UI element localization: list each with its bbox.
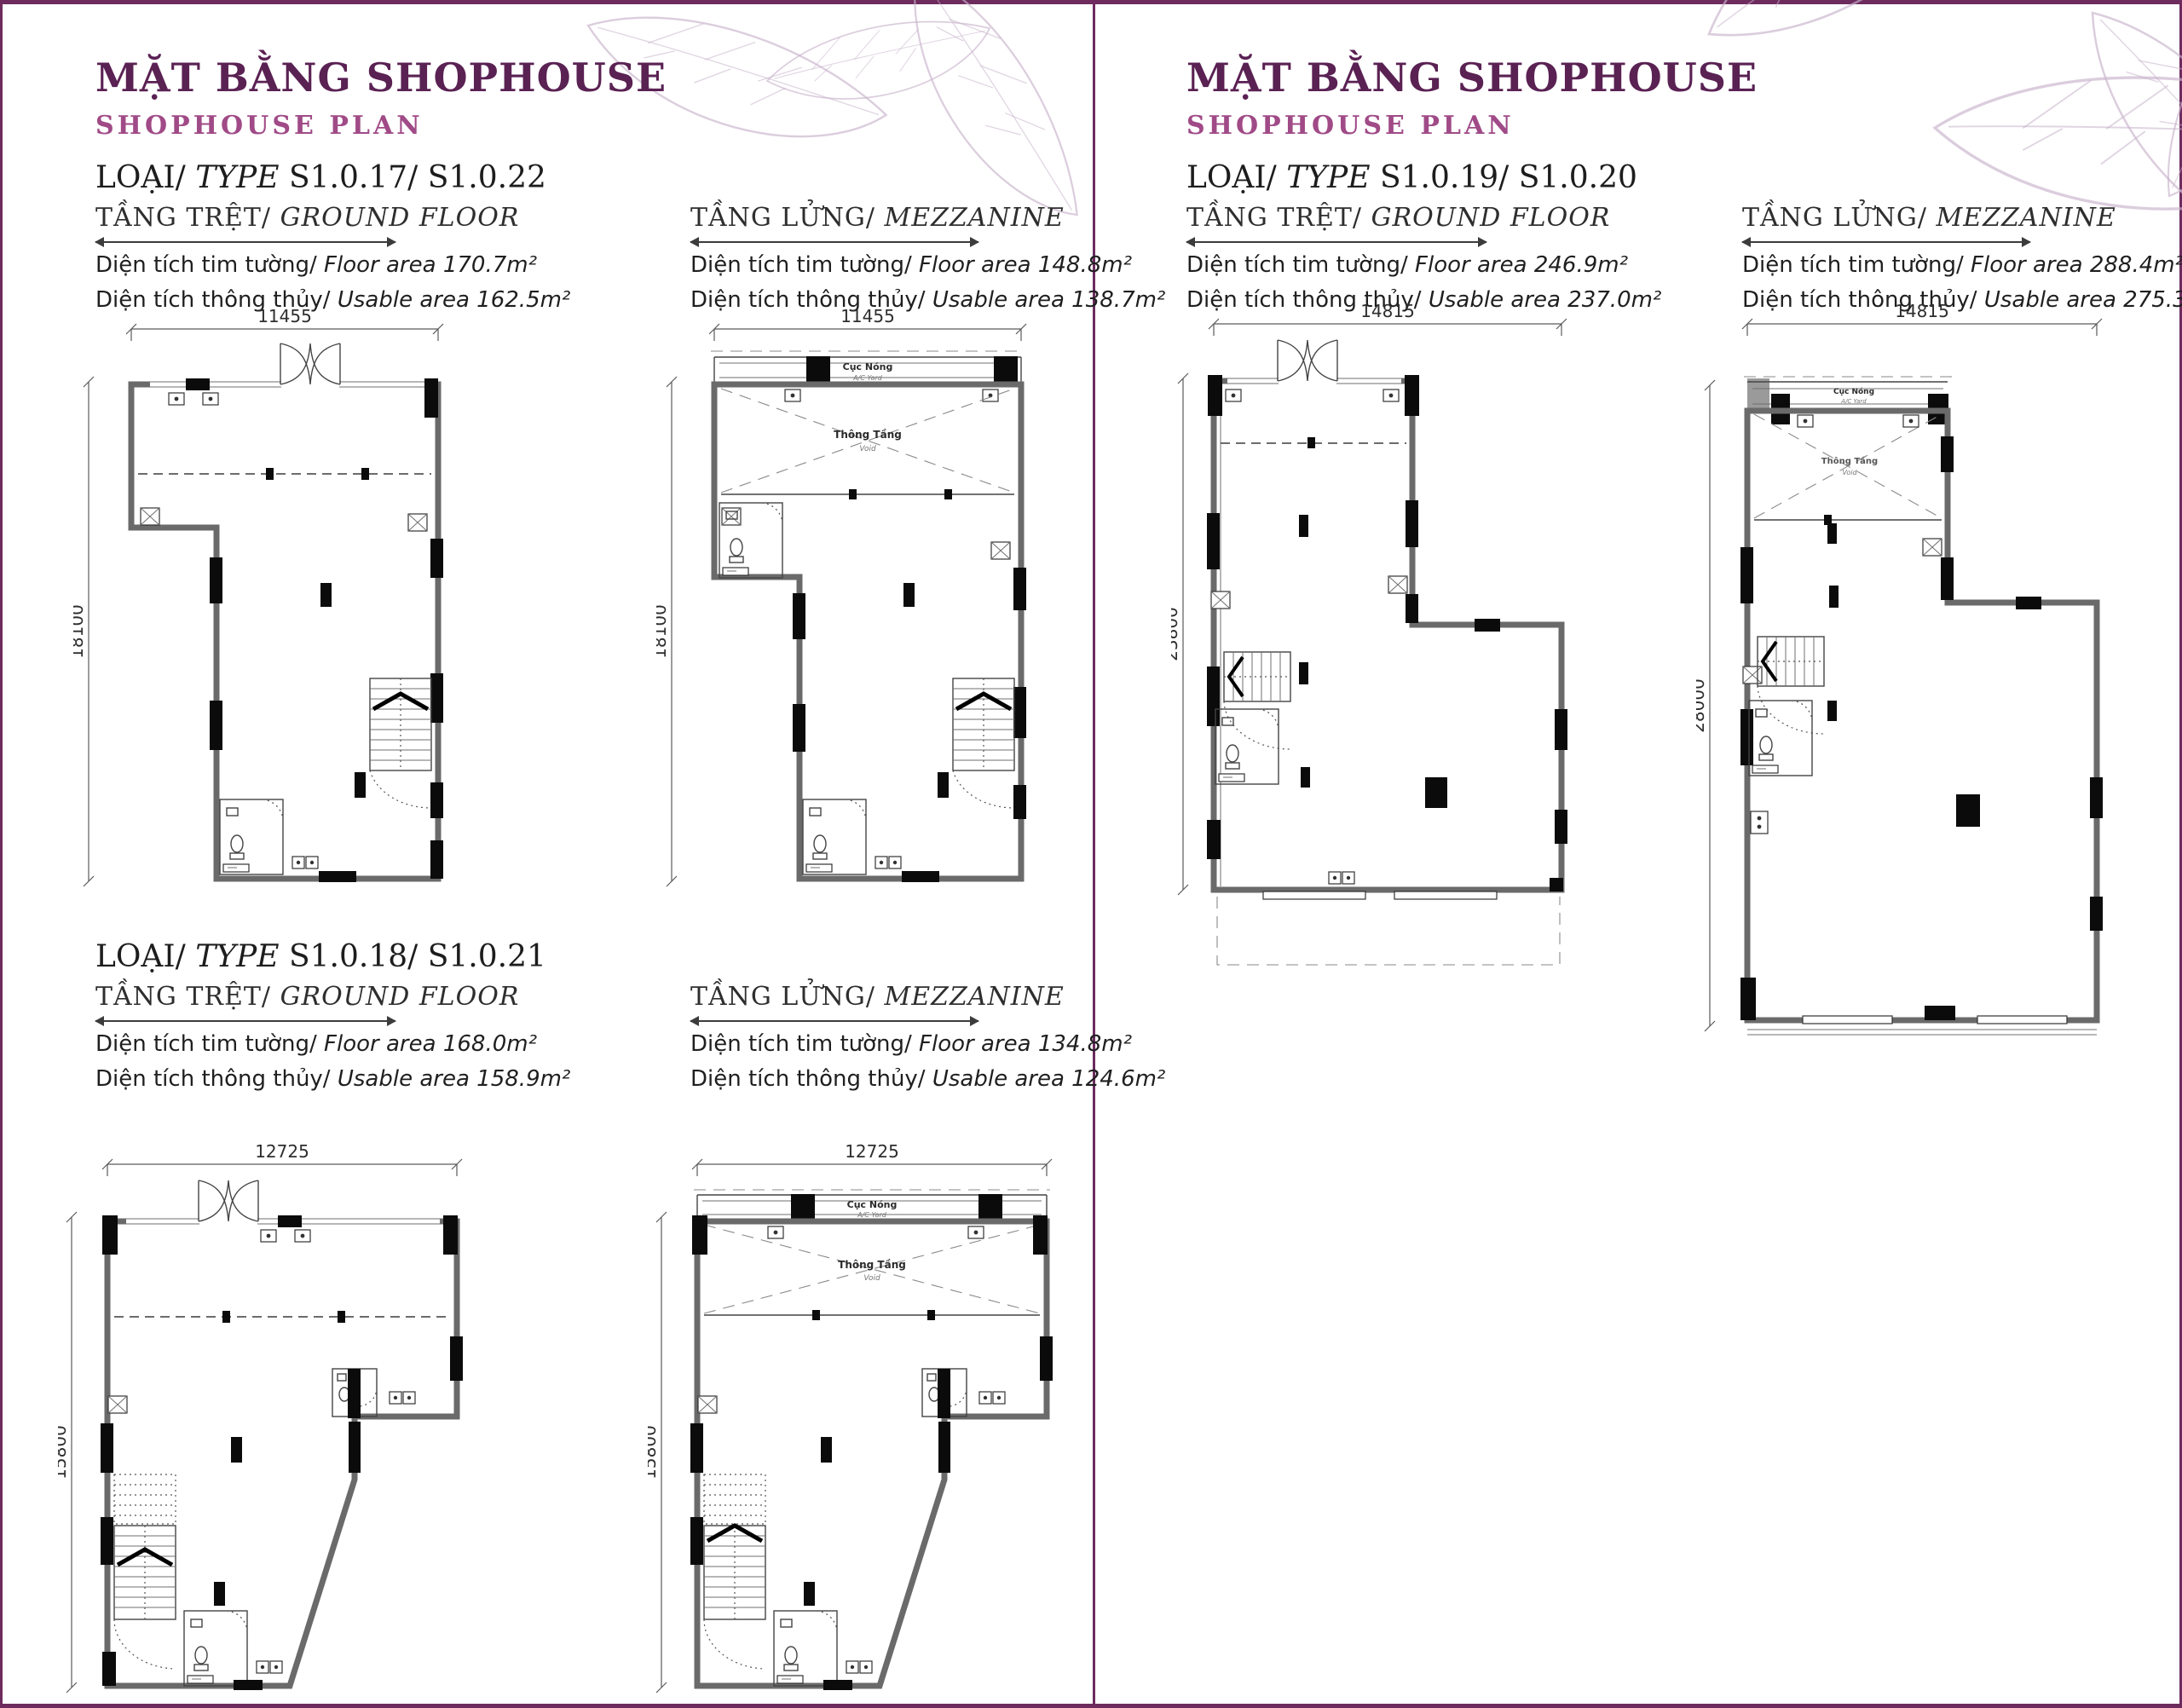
floor-label-vi: TẦNG LỬNG/ [690, 203, 875, 233]
type-label-vi: LOẠI/ [95, 160, 186, 195]
shaft-icon [1743, 666, 1762, 684]
wall-fixture-icon [1226, 389, 1241, 401]
stairs-icon [704, 1474, 765, 1669]
outer-walls [697, 1221, 1047, 1686]
mezz-header-s17: TẦNG LỬNG/ MEZZANINE Diện tích tim tường… [690, 203, 1165, 313]
svg-text:28000: 28000 [1696, 678, 1708, 733]
outlet-icon [390, 1392, 415, 1404]
outlet-icon [846, 1661, 872, 1673]
dimension-left: 23800 [1171, 373, 1188, 895]
shaded-block [1747, 378, 1769, 413]
dimension-top: 14815 [1742, 301, 2102, 336]
svg-text:A/C Yard: A/C Yard [852, 374, 883, 382]
shaft-icon [1211, 591, 1230, 609]
floor-label-vi: TẦNG TRỆT/ [95, 203, 271, 233]
leaf-icon [766, 0, 990, 119]
svg-text:Thông Tầng: Thông Tầng [838, 1259, 906, 1271]
leaf-icon [580, 0, 886, 213]
wall-fixture-icon [768, 1226, 783, 1238]
svg-text:Thông Tầng: Thông Tầng [1821, 456, 1878, 466]
shaft-icon [698, 1396, 717, 1413]
outlet-icon [979, 1392, 1005, 1404]
svg-text:Void: Void [863, 1274, 880, 1283]
header-underline-arrow [1186, 241, 1486, 243]
dimension-top: 12725 [692, 1141, 1052, 1176]
type-heading-s18: LOẠI/ TYPE S1.0.18/ S1.0.21 [95, 939, 546, 974]
stairs-icon [953, 678, 1014, 808]
wc-room [1749, 701, 1812, 776]
outlet-icon [1329, 872, 1354, 884]
wall-fixture-icon [261, 1230, 276, 1242]
wall-fixture-icon [203, 393, 218, 405]
outer-walls [714, 384, 1021, 879]
wall-fixture-icon [1383, 389, 1399, 401]
wall-fixture-icon [983, 389, 998, 401]
floorplan-s17-ground: 11455 18100 [73, 303, 448, 900]
svg-text:12725: 12725 [255, 1141, 309, 1162]
svg-text:15800: 15800 [648, 1425, 660, 1480]
page-subtitle-left: SHOPHOUSE PLAN [95, 111, 424, 141]
shaft-icon [108, 1396, 127, 1413]
stairs-icon [114, 1474, 176, 1669]
type-heading-s19: LOẠI/ TYPE S1.0.19/ S1.0.20 [1186, 160, 1637, 195]
wall-fixture-icon [1798, 415, 1813, 427]
shaft-icon [1388, 576, 1407, 593]
shaft-icon [408, 514, 427, 531]
void-area: Thông Tầng Void [704, 1225, 1040, 1320]
svg-text:Void: Void [859, 445, 876, 453]
floor-area-line: Diện tích tim tường/ Floor area 246.9m² [1186, 252, 1661, 278]
outlet-icon [875, 857, 901, 868]
double-door-icon [280, 343, 340, 384]
leaf-icon [2102, 0, 2182, 204]
wall-fixture-icon [169, 393, 184, 405]
svg-text:18100: 18100 [73, 604, 87, 659]
brochure-page: MẶT BẰNG SHOPHOUSE SHOPHOUSE PLAN LOẠI/ … [0, 0, 2182, 1708]
dimension-left: 18100 [73, 377, 94, 886]
type-heading-s17: LOẠI/ TYPE S1.0.17/ S1.0.22 [95, 160, 546, 195]
wc-room [803, 799, 866, 874]
outer-walls [131, 384, 438, 879]
shaft-icon [722, 508, 741, 525]
stairs-icon [1758, 637, 1824, 734]
shaft-icon [141, 508, 159, 525]
floor-area-line: Diện tích tim tường/ Floor area 134.8m² [690, 1031, 1165, 1057]
shaft-icon [1923, 539, 1942, 556]
outer-walls [107, 1221, 457, 1686]
header-underline-arrow [690, 241, 978, 243]
ground-header-s19: TẦNG TRỆT/ GROUND FLOOR Diện tích tim tư… [1186, 203, 1661, 313]
outlet-icon [257, 1661, 282, 1673]
floorplan-s17-mezzanine: 11455 18100 Cục Nóng A/C Yard Thông Tầng… [656, 303, 1031, 900]
svg-text:23800: 23800 [1171, 607, 1181, 661]
type-codes: S1.0.17/ S1.0.22 [289, 160, 546, 195]
floor-area-line: Diện tích tim tường/ Floor area 170.7m² [95, 252, 570, 278]
svg-text:14815: 14815 [1360, 301, 1415, 321]
svg-text:11455: 11455 [257, 306, 312, 326]
svg-text:Void: Void [1842, 469, 1857, 476]
floorplan-s19-mezzanine: 14815 28000 Cục Nóng A/C Yard Thông Tầng… [1696, 300, 2122, 1050]
wall-fixture-icon [785, 389, 800, 401]
floorplan-s18-ground: 12725 15800 [58, 1140, 484, 1705]
svg-text:Thông Tầng: Thông Tầng [834, 429, 902, 441]
svg-text:15800: 15800 [58, 1425, 70, 1480]
wc-room [774, 1611, 837, 1686]
floor-area-line: Diện tích tim tường/ Floor area 148.8m² [690, 252, 1165, 278]
type-label-en: TYPE [195, 160, 279, 195]
page-subtitle-right: SHOPHOUSE PLAN [1186, 111, 1515, 141]
outer-walls [1747, 411, 2097, 1020]
wc-room [220, 799, 283, 874]
floorplan-s19-ground: 14815 23800 [1171, 300, 1572, 982]
svg-text:Cục Nóng: Cục Nóng [1833, 387, 1874, 396]
svg-text:11455: 11455 [840, 306, 895, 326]
wall-fixture-icon [1903, 415, 1919, 427]
svg-text:18100: 18100 [656, 604, 670, 659]
wall-fixture-icon [1751, 811, 1768, 834]
floor-label-en: GROUND FLOOR [280, 203, 520, 233]
wall-fixture-icon [968, 1226, 984, 1238]
mezz-header-s18: TẦNG LỬNG/ MEZZANINE Diện tích tim tường… [690, 982, 1165, 1092]
header-underline-arrow [95, 1020, 395, 1022]
wc-room [184, 1611, 247, 1686]
header-underline-arrow [95, 241, 395, 243]
outlet-icon [292, 857, 318, 868]
column [186, 378, 210, 390]
shaft-icon [991, 542, 1010, 559]
outer-walls [1214, 381, 1561, 890]
svg-text:Cục Nóng: Cục Nóng [843, 361, 893, 372]
floorplan-s18-mezzanine: 12725 15800 Cục Nóng A/C Yard Thông Tầng… [648, 1140, 1074, 1705]
dimension-left: 28000 [1696, 380, 1715, 1031]
floor-area-line: Diện tích tim tường/ Floor area 288.4m² [1742, 252, 2182, 278]
header-underline-arrow [690, 1020, 978, 1022]
usable-area-line: Diện tích thông thủy/ Usable area 124.6m… [690, 1066, 1165, 1092]
wall-fixture-icon [295, 1230, 310, 1242]
header-underline-arrow [1742, 241, 2030, 243]
svg-text:Cục Nóng: Cục Nóng [847, 1199, 898, 1210]
usable-area-line: Diện tích thông thủy/ Usable area 158.9m… [95, 1066, 570, 1092]
floor-area-line: Diện tích tim tường/ Floor area 168.0m² [95, 1031, 570, 1057]
void-area: Thông Tầng Void [1754, 414, 1942, 525]
page-title-right: MẶT BẰNG SHOPHOUSE [1186, 55, 1758, 101]
ac-yard-strip: Cục Nóng A/C Yard [714, 356, 1021, 384]
svg-text:12725: 12725 [845, 1141, 899, 1162]
mezz-header-s19: TẦNG LỬNG/ MEZZANINE Diện tích tim tường… [1742, 203, 2182, 313]
dimension-top: 12725 [102, 1141, 462, 1176]
void-area: Thông Tầng Void [721, 389, 1014, 499]
double-door-icon [199, 1180, 258, 1221]
ac-yard-strip: Cục Nóng A/C Yard [697, 1194, 1047, 1220]
stairs-icon [370, 678, 431, 808]
balcony-edge [1747, 1030, 2097, 1035]
double-door-icon [1278, 340, 1337, 381]
floor-label-en: MEZZANINE [885, 203, 1065, 233]
dimension-top: 14815 [1209, 301, 1567, 336]
awning-dashed-extension [1217, 897, 1560, 965]
dimension-top: 11455 [126, 306, 443, 341]
dimension-left: 15800 [58, 1212, 77, 1693]
dimension-left: 18100 [656, 377, 677, 886]
dimension-left: 15800 [648, 1212, 667, 1693]
stairs-icon [1224, 652, 1290, 749]
svg-text:14815: 14815 [1895, 301, 1949, 321]
page-title-left: MẶT BẰNG SHOPHOUSE [95, 55, 667, 101]
svg-text:A/C Yard: A/C Yard [1840, 398, 1867, 405]
ground-header-s18: TẦNG TRỆT/ GROUND FLOOR Diện tích tim tư… [95, 982, 570, 1092]
dimension-top: 11455 [709, 306, 1026, 341]
svg-text:A/C Yard: A/C Yard [857, 1211, 887, 1219]
leaf-icon [1678, 0, 2027, 47]
ground-header-s17: TẦNG TRỆT/ GROUND FLOOR Diện tích tim tư… [95, 203, 570, 313]
